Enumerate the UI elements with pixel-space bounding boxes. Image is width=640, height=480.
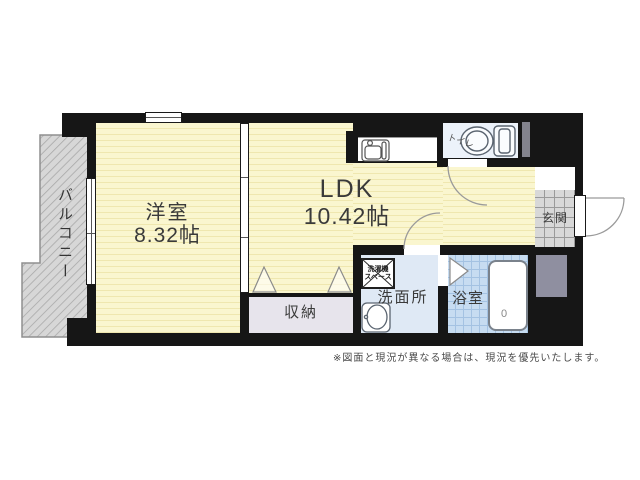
- floor-plan: 洗濯機 スペース: [0, 0, 640, 480]
- western-room-size: 8.32帖: [95, 224, 240, 247]
- bathroom-label: 浴室: [440, 291, 496, 308]
- vanity-sink-icon: [362, 303, 390, 332]
- laundry-x-mark: [362, 259, 394, 288]
- ldk-label: LDK 10.42帖: [250, 176, 444, 229]
- ldk-name: LDK: [250, 176, 444, 204]
- kitchen-sink-icon: [362, 140, 389, 161]
- disclaimer-text: ※図面と現況が異なる場合は、現況を優先いたします。: [333, 349, 605, 364]
- toilet-door-arc: [448, 166, 487, 205]
- closet-fold-triangles: [253, 267, 351, 292]
- bathtub-mark: 0: [501, 308, 507, 320]
- entrance-door-arc: [586, 198, 624, 236]
- entrance-label: 玄関: [535, 212, 575, 225]
- bath-door-triangle: [450, 258, 468, 285]
- closet-label: 収納: [249, 305, 353, 322]
- washroom-label: 洗面所: [365, 290, 441, 307]
- balcony-label: バルコニー: [48, 172, 72, 297]
- western-room-name: 洋室: [95, 202, 240, 224]
- ldk-size: 10.42帖: [250, 204, 444, 229]
- western-room-label: 洋室 8.32帖: [95, 202, 240, 247]
